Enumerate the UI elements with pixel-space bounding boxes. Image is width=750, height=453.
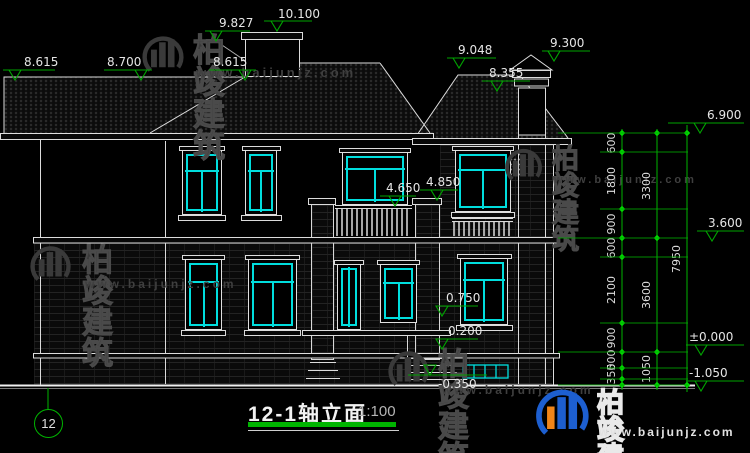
dimension-value: 900	[605, 328, 618, 349]
title-underline	[248, 422, 396, 427]
elevation-flag-triangle	[491, 81, 503, 91]
elevation-flag-triangle	[424, 365, 436, 375]
drawing-scale: 1:100	[358, 403, 396, 420]
dimension-value: 350	[605, 364, 618, 385]
elevation-label: 8.355	[489, 66, 523, 80]
elevation-flag-triangle	[453, 58, 465, 68]
dimension-annotations: 8.6158.7009.8278.61510.1009.0488.3559.30…	[0, 0, 750, 453]
elevation-flag-triangle	[135, 70, 147, 80]
elevation-label: 8.615	[213, 55, 247, 69]
elevation-label: 6.900	[707, 108, 741, 122]
dimension-value: 600	[605, 133, 618, 154]
elevation-label: 0.750	[446, 291, 480, 305]
dimension-value: 3600	[640, 281, 653, 309]
elevation-flag-triangle	[548, 51, 560, 61]
elevation-label: 8.615	[24, 55, 58, 69]
elevation-flag-triangle	[271, 21, 283, 31]
elevation-label: ±0.000	[689, 330, 733, 344]
elevation-flag-triangle	[389, 196, 401, 206]
axis-bubble: 12	[34, 409, 63, 438]
elevation-flag-triangle	[210, 31, 222, 41]
elevation-flag-triangle	[436, 339, 448, 349]
elevation-label: 10.100	[278, 7, 320, 21]
elevation-flag-triangle	[706, 231, 718, 241]
elevation-label: -1.050	[689, 366, 728, 380]
elevation-label: -0.350	[438, 377, 477, 391]
elevation-label: 9.827	[219, 16, 253, 30]
elevation-label: 9.048	[458, 43, 492, 57]
dimension-value: 1800	[605, 167, 618, 195]
elevation-flag-triangle	[431, 190, 443, 200]
dimension-value: 3300	[640, 172, 653, 200]
elevation-label: 4.650	[386, 181, 420, 195]
dimension-value: 900	[605, 214, 618, 235]
elevation-flag-triangle	[694, 123, 706, 133]
elevation-label: 9.300	[550, 36, 584, 50]
elevation-flag-triangle	[695, 381, 707, 391]
elevation-label: 4.850	[426, 175, 460, 189]
elevation-flag-triangle	[239, 70, 251, 80]
dimension-value: 7950	[670, 245, 683, 273]
dimension-value: 600	[605, 238, 618, 259]
elevation-label: 3.600	[708, 216, 742, 230]
elevation-flag-triangle	[9, 70, 21, 80]
elevation-label: 8.700	[107, 55, 141, 69]
elevation-label: 0.200	[448, 324, 482, 338]
elevation-flag-triangle	[695, 345, 707, 355]
elevation-flag-triangle	[436, 306, 448, 316]
dimension-value: 2100	[605, 276, 618, 304]
elevation-drawing-canvas: 柏竣建筑 www.baijunjz.com 柏竣建筑 www.baijunjz.…	[0, 0, 750, 453]
title-underline-thin	[248, 430, 399, 431]
